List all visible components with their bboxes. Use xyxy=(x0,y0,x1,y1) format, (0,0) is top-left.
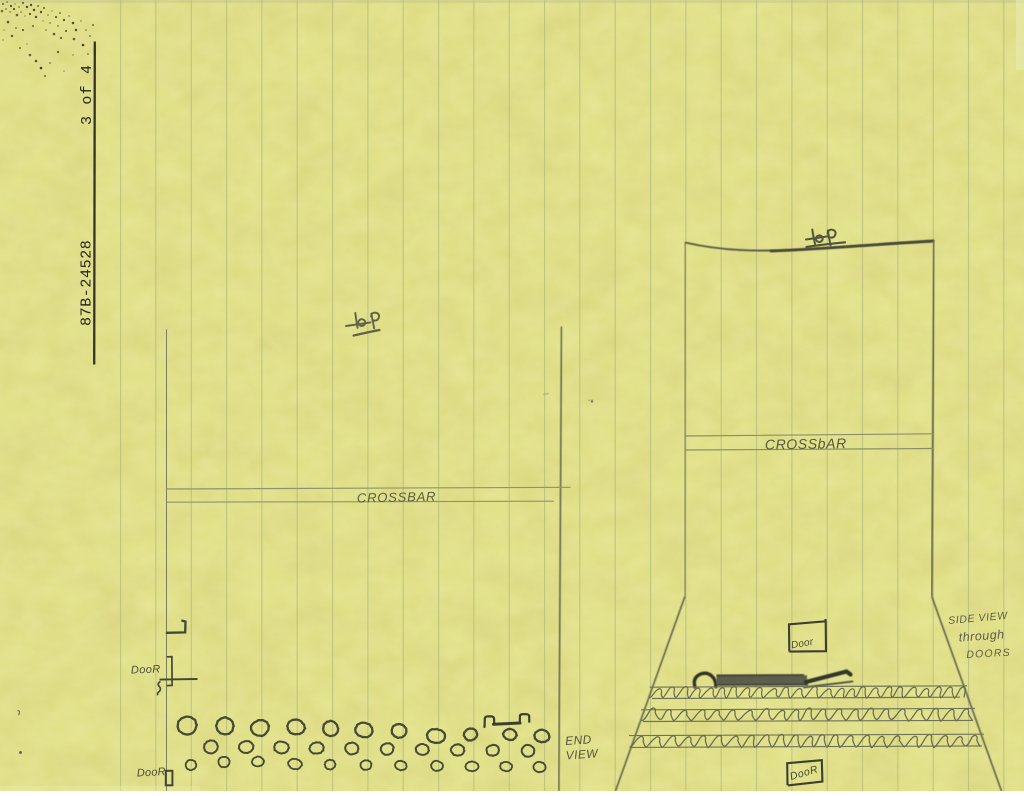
svg-text:3 of 4: 3 of 4 xyxy=(79,64,96,125)
svg-text:87B-24528: 87B-24528 xyxy=(79,240,96,326)
svg-text:VIEW: VIEW xyxy=(565,746,599,762)
svg-text:CROSSBAR: CROSSBAR xyxy=(357,489,437,506)
svg-text:DooR: DooR xyxy=(137,766,167,779)
svg-text:CROSSbAR: CROSSbAR xyxy=(765,435,847,452)
svg-text:END: END xyxy=(565,732,592,748)
svg-text:DooR: DooR xyxy=(131,663,161,676)
svg-text:DOORS: DOORS xyxy=(966,647,1011,661)
